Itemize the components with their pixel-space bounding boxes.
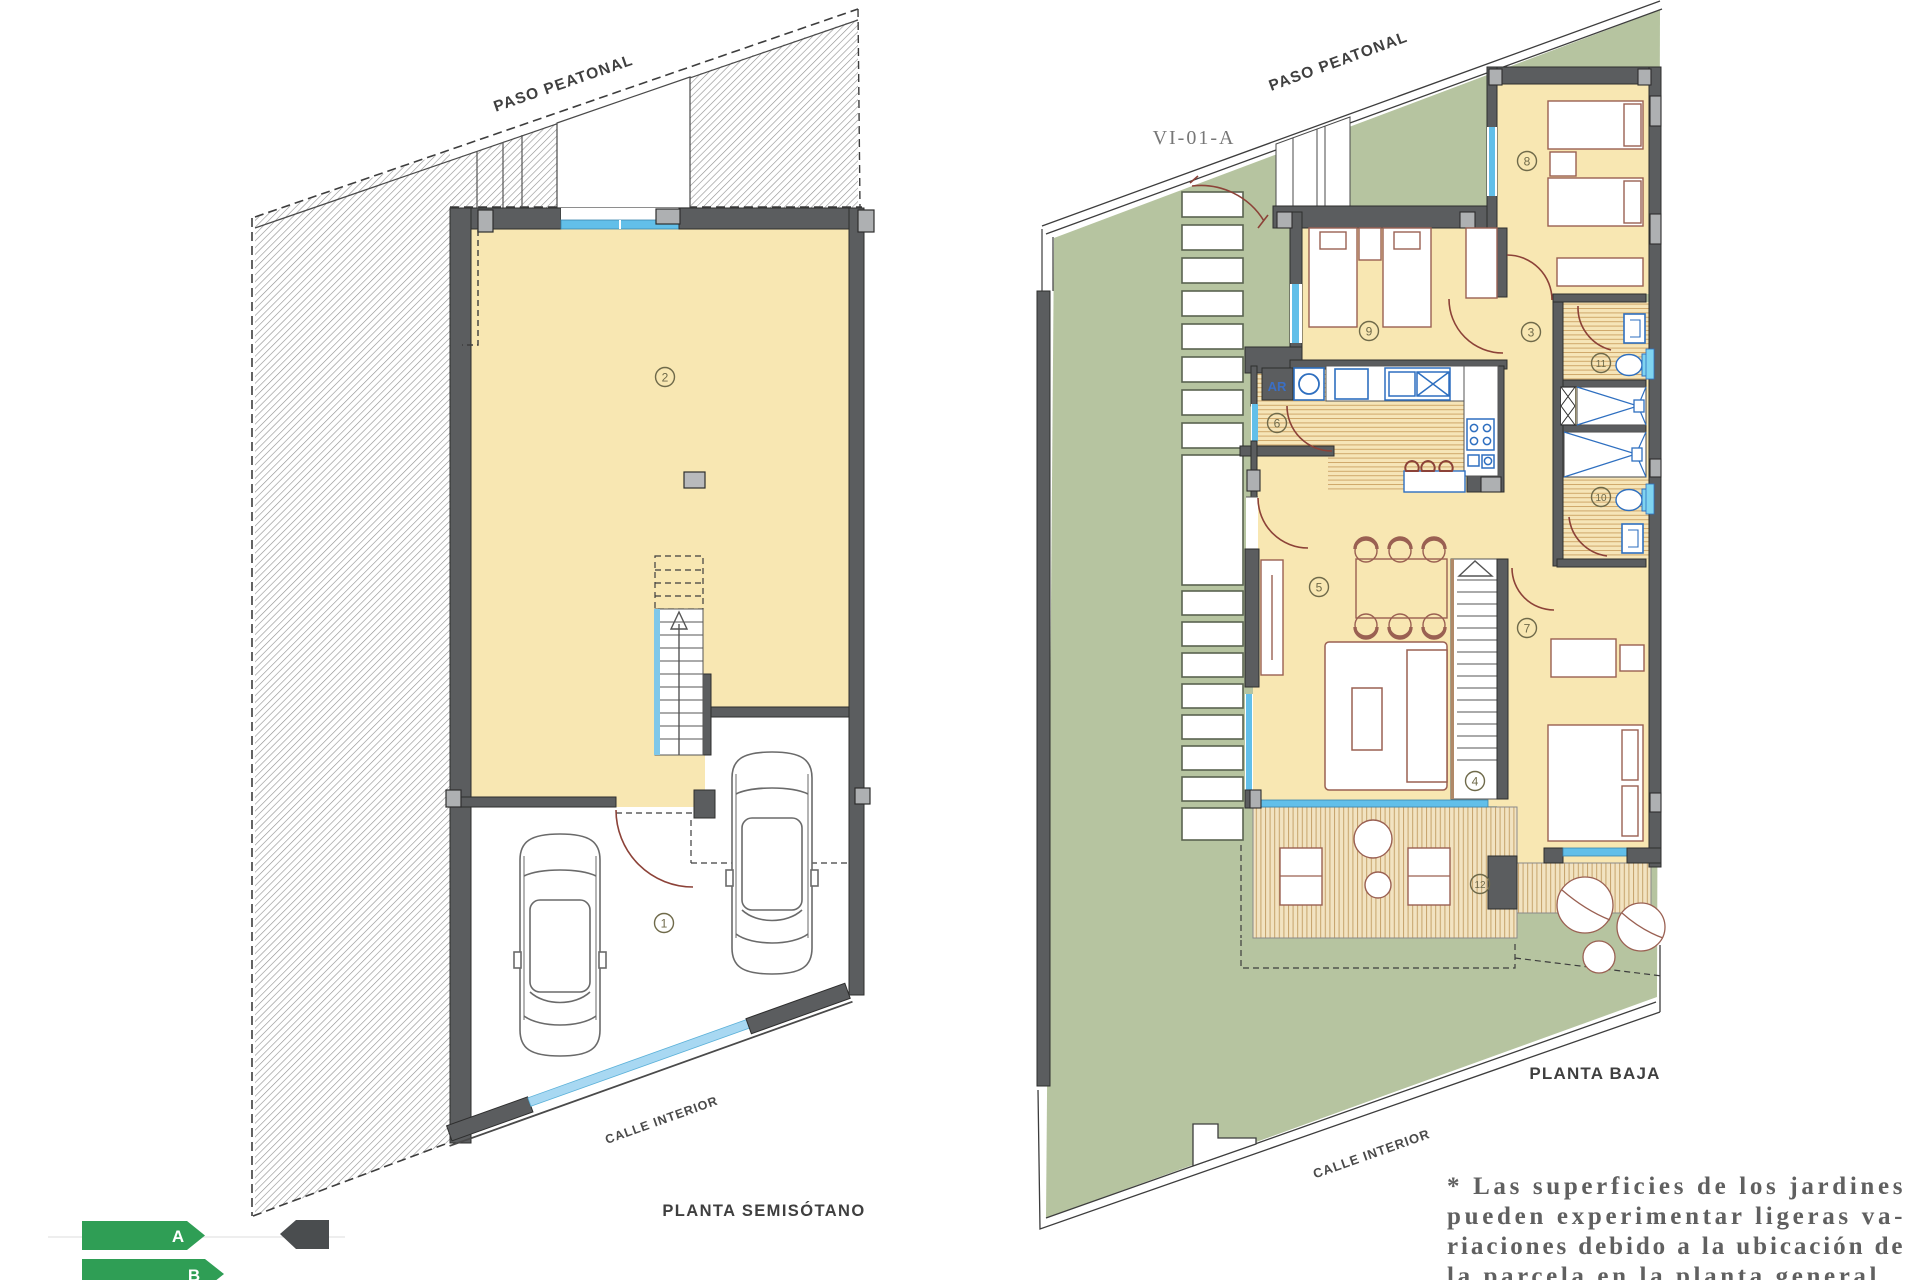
svg-text:A: A <box>172 1227 184 1246</box>
svg-text:pueden experimentar ligeras va: pueden experimentar ligeras va- <box>1447 1203 1903 1230</box>
svg-text:1: 1 <box>661 917 668 931</box>
svg-text:8: 8 <box>1524 155 1531 169</box>
svg-text:AR: AR <box>1268 379 1287 394</box>
svg-text:9: 9 <box>1366 325 1373 339</box>
svg-text:10: 10 <box>1595 493 1607 504</box>
svg-text:6: 6 <box>1274 417 1281 431</box>
svg-text:4: 4 <box>1472 775 1479 789</box>
svg-text:la parcela en la planta genera: la parcela en la planta general <box>1447 1263 1877 1280</box>
svg-text:PLANTA BAJA: PLANTA BAJA <box>1529 1064 1660 1083</box>
svg-text:VI-01-A: VI-01-A <box>1153 127 1236 149</box>
svg-text:2: 2 <box>662 371 669 385</box>
svg-text:3: 3 <box>1528 326 1535 340</box>
svg-text:PLANTA SEMISÓTANO: PLANTA SEMISÓTANO <box>662 1201 865 1220</box>
svg-text:5: 5 <box>1316 581 1323 595</box>
svg-text:* Las superficies de los jardi: * Las superficies de los jardines <box>1447 1173 1903 1200</box>
svg-text:B: B <box>188 1266 200 1280</box>
svg-text:12: 12 <box>1474 880 1486 891</box>
svg-text:7: 7 <box>1524 622 1531 636</box>
svg-text:11: 11 <box>1596 359 1607 370</box>
